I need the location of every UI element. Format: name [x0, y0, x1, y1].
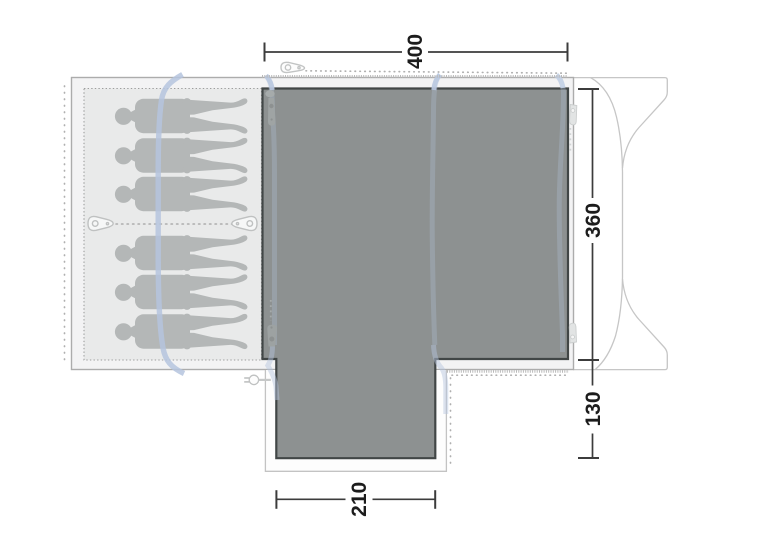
svg-text:360: 360 — [582, 203, 605, 238]
svg-text:210: 210 — [348, 482, 371, 517]
svg-text:130: 130 — [582, 391, 605, 426]
svg-text:400: 400 — [404, 34, 427, 69]
